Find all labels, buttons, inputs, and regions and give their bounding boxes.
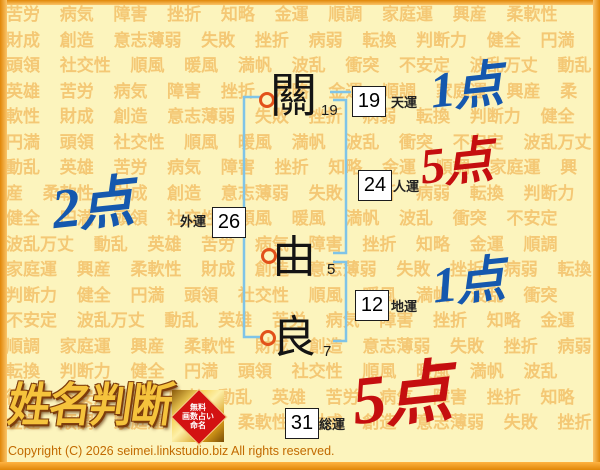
badge-line-1: 無料 xyxy=(190,403,206,412)
total-luck-value-box: 31 xyxy=(285,408,319,439)
frame-bottom xyxy=(0,462,600,470)
given-char2: 良 xyxy=(272,316,316,360)
surname-char-strokes: 19 xyxy=(321,103,338,118)
badge-text: 無料 画数占い 命名 xyxy=(182,403,214,430)
frame-left xyxy=(0,0,7,470)
heaven-luck-score: 1点 xyxy=(428,58,504,115)
frame-right xyxy=(593,0,600,470)
person-luck-label: 人運 xyxy=(393,180,419,193)
given-char1-strokes: 5 xyxy=(327,262,335,277)
seimei-handan-result-page: 苦労 病気 障害 挫折 知略 金運 順調 家庭運 興産 柔軟性 財成 創造 意志… xyxy=(0,0,600,470)
badge-line-3: 命名 xyxy=(190,421,206,430)
given-char2-strokes: 7 xyxy=(323,344,331,359)
surname-char: 關 xyxy=(270,74,317,121)
outer-luck-value-box: 26 xyxy=(212,207,246,238)
total-luck-label: 総運 xyxy=(319,418,345,431)
earth-luck-value-box: 12 xyxy=(355,290,389,321)
heaven-luck-value-box: 19 xyxy=(352,86,386,117)
person-luck-score: 5点 xyxy=(418,134,494,191)
copyright-text: Copyright (C) 2026 seimei.linkstudio.biz… xyxy=(8,444,335,459)
total-luck-score: 5点 xyxy=(349,357,454,435)
given-char1: 由 xyxy=(272,236,316,280)
free-naming-badge[interactable]: 無料 画数占い 命名 xyxy=(172,390,224,442)
heaven-luck-label: 天運 xyxy=(391,96,417,109)
earth-luck-score: 1点 xyxy=(430,253,506,310)
person-luck-bracket xyxy=(333,100,346,253)
outer-luck-bracket xyxy=(244,97,260,337)
person-luck-value-box: 24 xyxy=(358,170,392,201)
outer-luck-score: 2点 xyxy=(49,174,134,238)
badge-line-2: 画数占い xyxy=(182,412,214,421)
earth-luck-label: 地運 xyxy=(391,300,417,313)
outer-luck-label: 外運 xyxy=(180,215,206,228)
frame-top xyxy=(0,0,600,5)
site-logo[interactable]: 姓名判断 xyxy=(5,383,176,429)
